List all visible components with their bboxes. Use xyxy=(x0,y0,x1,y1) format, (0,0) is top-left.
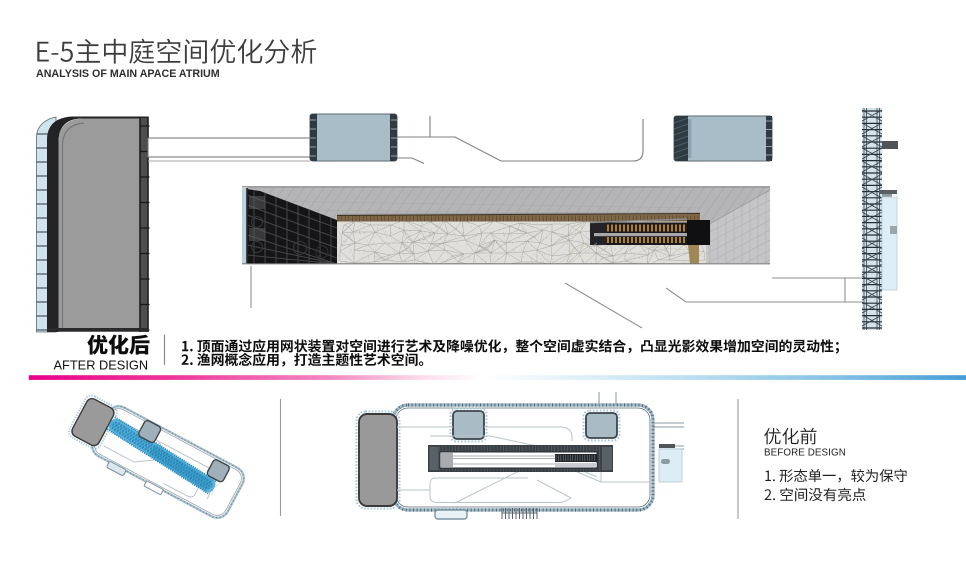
svg-text:BEFORE DESIGN: BEFORE DESIGN xyxy=(764,447,846,458)
svg-text:ANALYSIS OF MAIN APACE ATRIUM: ANALYSIS OF MAIN APACE ATRIUM xyxy=(36,68,220,80)
svg-text:AFTER DESIGN: AFTER DESIGN xyxy=(54,357,149,372)
